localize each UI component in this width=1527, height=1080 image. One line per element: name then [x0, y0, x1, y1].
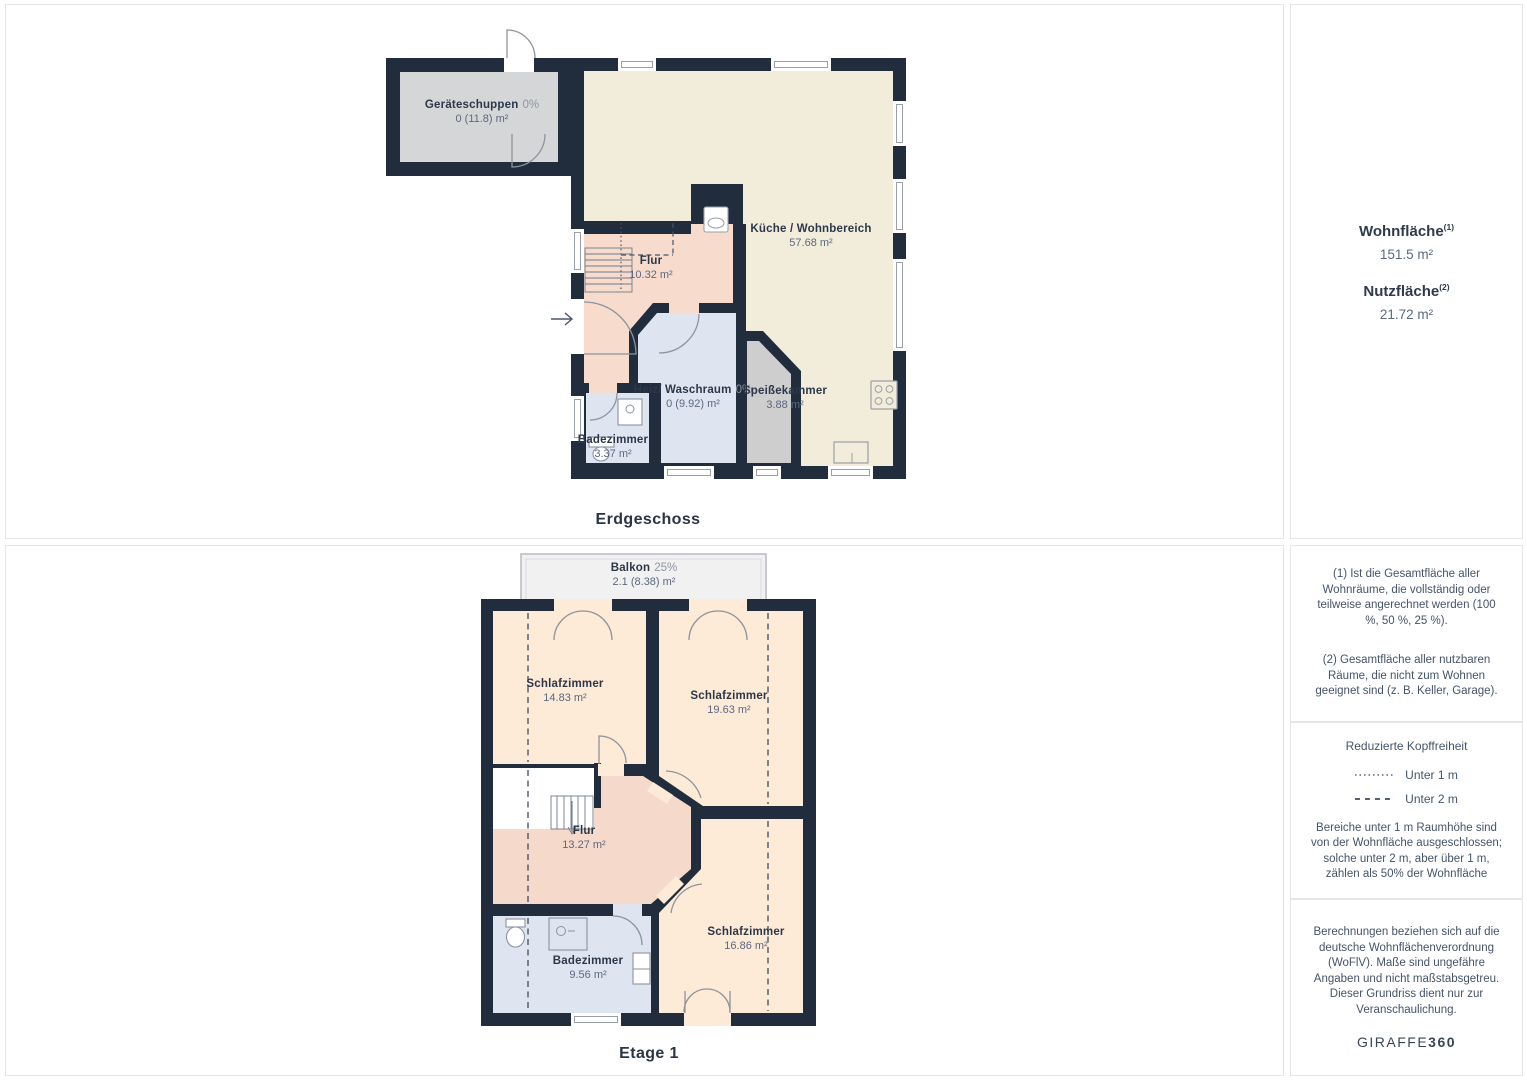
- wall-segment: [733, 224, 746, 304]
- footnote-1: (1) Ist die Gesamtfläche aller Wohnräume…: [1291, 567, 1522, 629]
- toilet-icon: [506, 919, 525, 947]
- giraffe360-logo: GIRAFFE360: [1357, 1034, 1456, 1050]
- wohnflaeche-value: 151.5 m²: [1380, 247, 1433, 262]
- sidebar-disclaimer: Berechnungen beziehen sich auf die deuts…: [1290, 899, 1523, 1076]
- room-schlafzimmer-2: [659, 611, 803, 806]
- legend-item-under-2m: Unter 2 m: [1355, 792, 1458, 806]
- legend-note: Bereiche unter 1 m Raumhöhe sind von der…: [1291, 821, 1522, 883]
- cabinet-icon: [633, 953, 650, 984]
- disclaimer-text: Berechnungen beziehen sich auf die deuts…: [1291, 925, 1522, 1018]
- stove-icon: [871, 381, 897, 409]
- room-gerateschuppen: [400, 72, 558, 162]
- legend-title: Reduzierte Kopffreiheit: [1346, 739, 1468, 753]
- legend-item-under-1m: Unter 1 m: [1355, 768, 1458, 782]
- floorplan-page: Geräteschuppen0% 0 (11.8) m² Küche / Woh…: [0, 0, 1527, 1080]
- nutzflaeche-value: 21.72 m²: [1380, 307, 1433, 322]
- floor-caption-etage1: Etage 1: [619, 1045, 679, 1063]
- sidebar-legend: Reduzierte Kopffreiheit Unter 1 m Unter …: [1290, 722, 1523, 899]
- erdgeschoss-plan: [6, 5, 1282, 537]
- nutzflaeche-title: Nutzfläche(2): [1363, 282, 1449, 300]
- kitchen-sink-icon: [834, 442, 868, 463]
- wohnflaeche-title: Wohnfläche(1): [1359, 222, 1454, 240]
- window: [571, 1013, 621, 1026]
- stairwell: [493, 768, 594, 829]
- floor-caption-erdgeschoss: Erdgeschoss: [596, 511, 701, 529]
- floorplan-panel-erdgeschoss: Geräteschuppen0% 0 (11.8) m² Küche / Woh…: [5, 4, 1284, 539]
- balcony: [521, 554, 766, 604]
- etage1-plan: [6, 546, 1282, 1074]
- dashed-line-icon: [1355, 797, 1395, 801]
- room-schlafzimmer-1: [493, 611, 646, 764]
- wall-sink-icon: [704, 207, 728, 232]
- dotted-line-icon: [1355, 773, 1395, 777]
- footnote-2: (2) Gesamtfläche aller nutzbaren Räume, …: [1291, 653, 1522, 700]
- entry-arrow-icon: [551, 313, 572, 325]
- sidebar-footnotes: (1) Ist die Gesamtfläche aller Wohnräume…: [1290, 545, 1523, 722]
- bath-sink-icon: [618, 399, 642, 425]
- wohnflaeche-footnote-ref: (1): [1444, 222, 1454, 232]
- floorplan-panel-etage1: Balkon25% 2.1 (8.38) m² Schlafzimmer 14.…: [5, 545, 1284, 1076]
- sidebar-area-summary: Wohnfläche(1) 151.5 m² Nutzfläche(2) 21.…: [1290, 4, 1523, 539]
- wall-segment: [584, 221, 691, 234]
- nutzflaeche-footnote-ref: (2): [1439, 282, 1449, 292]
